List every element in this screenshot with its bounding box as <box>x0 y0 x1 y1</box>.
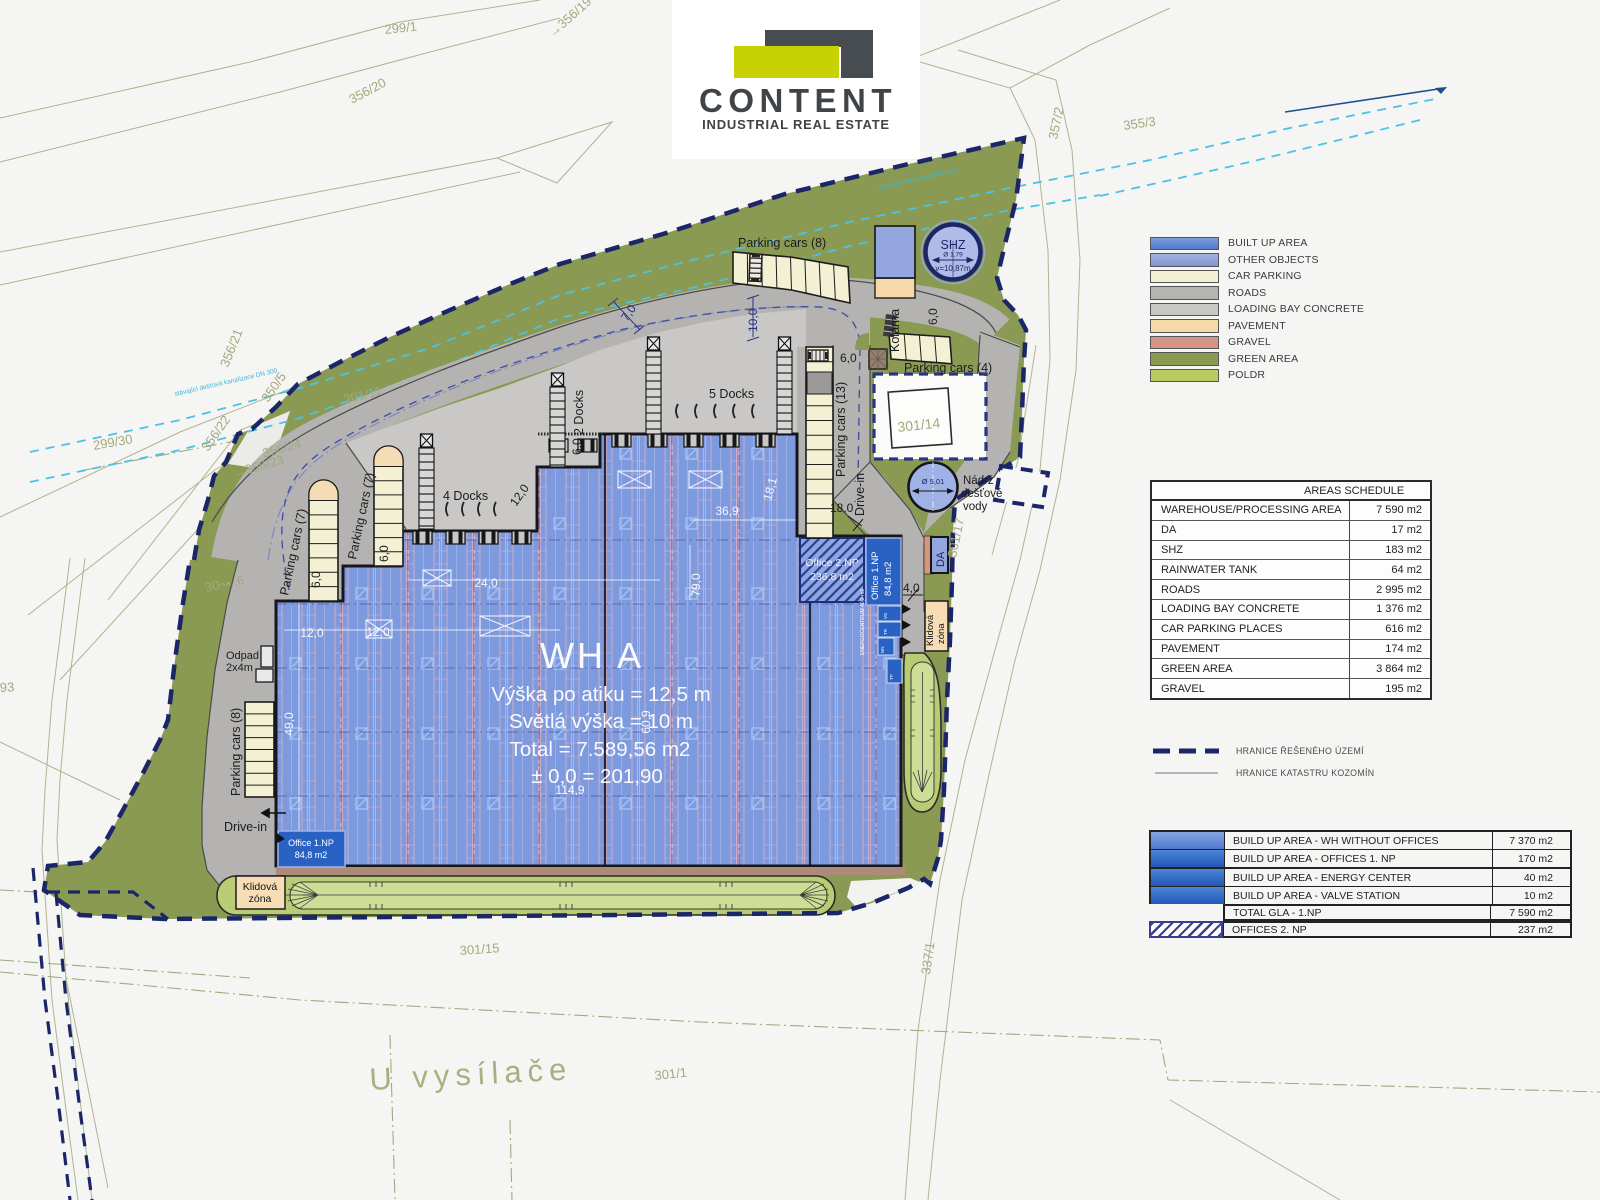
svg-text:356/21: 356/21 <box>217 327 246 369</box>
svg-text:Parking cars (13): Parking cars (13) <box>834 382 848 477</box>
svg-text:Parking cars (8): Parking cars (8) <box>229 708 243 796</box>
svg-text:Total = 7.589,56 m2: Total = 7.589,56 m2 <box>510 738 691 761</box>
svg-text:114,9: 114,9 <box>555 783 584 797</box>
svg-text:Office 1.NP: Office 1.NP <box>870 552 881 600</box>
svg-text:18,0: 18,0 <box>830 501 854 515</box>
svg-text:Parking cars (8): Parking cars (8) <box>738 236 826 250</box>
svg-text:zóna: zóna <box>936 623 947 644</box>
svg-text:Klidová: Klidová <box>243 881 278 893</box>
svg-text:5 Docks: 5 Docks <box>709 387 754 401</box>
svg-text:24,0: 24,0 <box>474 576 498 590</box>
svg-text:4,0: 4,0 <box>903 581 920 595</box>
svg-text:ENERGOCENTRUM 40,2 m2: ENERGOCENTRUM 40,2 m2 <box>860 589 866 655</box>
svg-text:93: 93 <box>0 679 15 695</box>
svg-text:12,0: 12,0 <box>366 625 390 639</box>
svg-text:36,9: 36,9 <box>715 504 739 518</box>
svg-text:VS: VS <box>883 613 888 619</box>
svg-text:Nádrž: Nádrž <box>963 475 994 487</box>
svg-text:Office 1.NP: Office 1.NP <box>288 838 334 848</box>
svg-text:356/20: 356/20 <box>346 75 388 107</box>
svg-text:301/1: 301/1 <box>654 1065 688 1083</box>
svg-text:WH A: WH A <box>540 635 644 676</box>
svg-text:84,8 m2: 84,8 m2 <box>295 850 328 860</box>
svg-text:236,8 m2: 236,8 m2 <box>810 571 854 583</box>
svg-text:Kolárna: Kolárna <box>888 309 902 352</box>
svg-text:6,0: 6,0 <box>840 351 857 365</box>
svg-text:6,0: 6,0 <box>309 571 323 588</box>
svg-text:NN: NN <box>880 647 885 654</box>
svg-text:Světlá výška = 10 m: Světlá výška = 10 m <box>509 710 693 733</box>
svg-text:301/15: 301/15 <box>459 940 500 958</box>
svg-text:357/2: 357/2 <box>1045 106 1066 141</box>
svg-text:Odpad: Odpad <box>226 650 259 662</box>
svg-text:337/1: 337/1 <box>918 941 937 975</box>
svg-text:2x4m: 2x4m <box>226 662 253 674</box>
svg-text:Drive-in: Drive-in <box>853 473 867 516</box>
svg-text:60,9: 60,9 <box>639 710 653 734</box>
svg-text:U vysílače: U vysílače <box>369 1051 574 1097</box>
svg-text:299/30: 299/30 <box>92 431 134 453</box>
svg-text:Výška po atiku = 12,5 m: Výška po atiku = 12,5 m <box>491 683 710 706</box>
svg-text:49,0: 49,0 <box>282 712 296 736</box>
svg-text:84,8 m2: 84,8 m2 <box>883 562 894 596</box>
svg-text:Drive-in: Drive-in <box>224 820 267 834</box>
svg-text:299/1: 299/1 <box>384 19 418 37</box>
svg-text:2 Docks: 2 Docks <box>572 390 586 435</box>
svg-text:Ø 5,01: Ø 5,01 <box>922 477 945 486</box>
svg-text:Klidová: Klidová <box>925 614 936 646</box>
svg-text:zóna: zóna <box>249 893 272 905</box>
svg-text:355/3: 355/3 <box>1122 114 1156 133</box>
svg-text:Office 2.NP: Office 2.NP <box>805 557 859 569</box>
svg-text:vody: vody <box>963 501 988 513</box>
svg-text:± 0,0 = 201,90: ± 0,0 = 201,90 <box>531 765 663 788</box>
svg-text:79,0: 79,0 <box>689 573 703 597</box>
svg-text:356/22: 356/22 <box>198 413 233 454</box>
svg-text:dešťové: dešťové <box>961 488 1002 500</box>
svg-text:Parking cars (4): Parking cars (4) <box>904 361 992 375</box>
svg-text:6,0: 6,0 <box>570 438 584 455</box>
svg-text:6,0: 6,0 <box>377 545 391 562</box>
svg-text:TP: TP <box>889 674 894 680</box>
svg-text:12,0: 12,0 <box>300 626 324 640</box>
svg-text:TR: TR <box>883 628 888 635</box>
svg-text:6,0: 6,0 <box>926 308 940 325</box>
svg-text:v=10,87m: v=10,87m <box>935 264 971 273</box>
svg-text:4 Docks: 4 Docks <box>443 489 488 503</box>
